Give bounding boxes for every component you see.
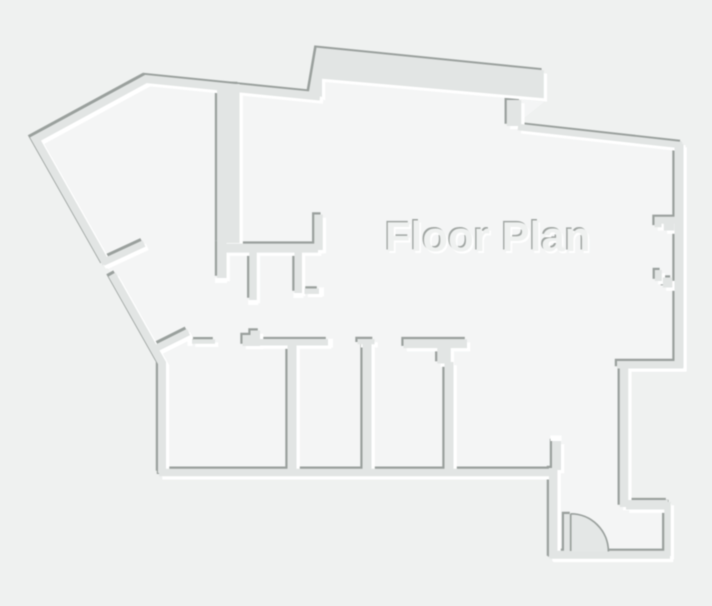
svg-text:Floor Plan: Floor Plan [385, 213, 590, 260]
